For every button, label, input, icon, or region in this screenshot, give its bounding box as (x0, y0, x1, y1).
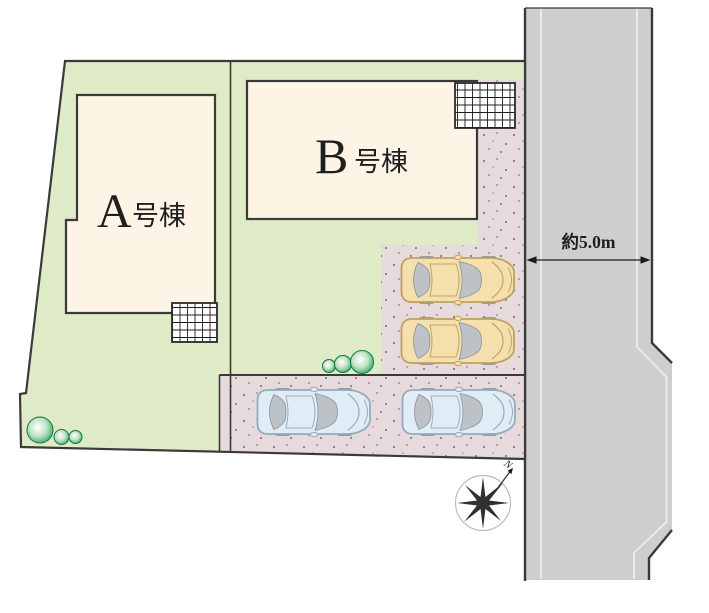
bush-icon (69, 431, 82, 444)
car-beige-1 (402, 255, 515, 304)
bush-icon (323, 360, 336, 373)
building-a-suffix: 号棟 (132, 201, 186, 231)
car-blue-1 (258, 387, 371, 436)
building-b-letter: B (315, 128, 348, 184)
site-plan-canvas: N 約5.0m A 号棟 B 号棟 (0, 0, 709, 613)
hatch-area-building-a (172, 303, 217, 342)
bush-icon (351, 351, 374, 374)
hatch-area-building-b (455, 83, 515, 128)
road (525, 8, 672, 581)
building-a-letter: A (97, 185, 132, 238)
bush-icon (54, 430, 69, 445)
building-b-suffix: 号棟 (354, 147, 408, 177)
lower-parking-border-strip (220, 375, 231, 452)
site-plan-drawing: N 約5.0m A 号棟 B 号棟 (0, 0, 709, 613)
road-width-label: 約5.0m (562, 232, 616, 252)
bush-icon (27, 417, 53, 443)
car-blue-2 (403, 387, 516, 436)
road-surface (525, 8, 672, 580)
car-beige-2 (402, 316, 515, 365)
bush-icon (335, 356, 352, 373)
